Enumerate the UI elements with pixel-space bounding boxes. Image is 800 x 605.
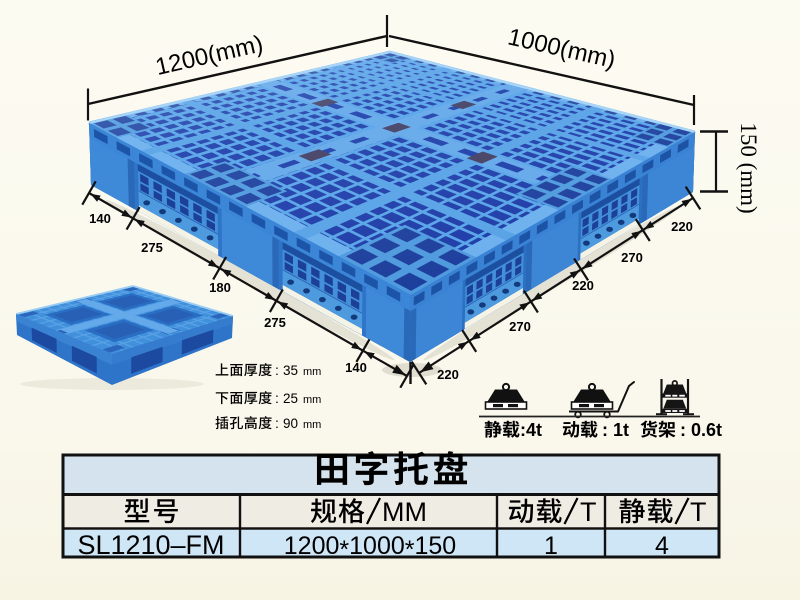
svg-text:MM: MM xyxy=(382,497,427,527)
svg-text:T: T xyxy=(580,497,597,527)
svg-text::: : xyxy=(275,390,279,406)
svg-text:1200*1000*150: 1200*1000*150 xyxy=(284,532,456,564)
svg-text::: : xyxy=(275,415,279,431)
svg-text::: : xyxy=(275,362,279,378)
svg-text:180: 180 xyxy=(209,280,231,295)
svg-text::4t: :4t xyxy=(520,420,542,440)
svg-text:220: 220 xyxy=(572,278,594,293)
svg-text:: 0.6t: : 0.6t xyxy=(680,420,722,440)
svg-text:mm: mm xyxy=(303,419,321,431)
svg-text:1: 1 xyxy=(544,532,558,560)
svg-text:25: 25 xyxy=(283,391,298,406)
svg-text:220: 220 xyxy=(671,219,693,234)
svg-text:T: T xyxy=(690,497,707,527)
svg-text:4: 4 xyxy=(655,532,669,560)
svg-text:mm: mm xyxy=(303,394,321,406)
svg-text:270: 270 xyxy=(509,319,531,334)
svg-text:140: 140 xyxy=(89,211,111,226)
svg-text:35: 35 xyxy=(283,363,298,378)
svg-text:270: 270 xyxy=(621,250,643,265)
svg-text:275: 275 xyxy=(141,240,163,255)
svg-text:140: 140 xyxy=(345,360,367,375)
svg-text:220: 220 xyxy=(437,367,459,382)
svg-text:150 (mm): 150 (mm) xyxy=(736,122,761,213)
svg-text:275: 275 xyxy=(264,315,286,330)
svg-text:mm: mm xyxy=(303,366,321,378)
svg-text:90: 90 xyxy=(283,416,298,431)
svg-text:SL1210–FM: SL1210–FM xyxy=(77,530,224,560)
svg-text:: 1t: : 1t xyxy=(602,420,629,440)
